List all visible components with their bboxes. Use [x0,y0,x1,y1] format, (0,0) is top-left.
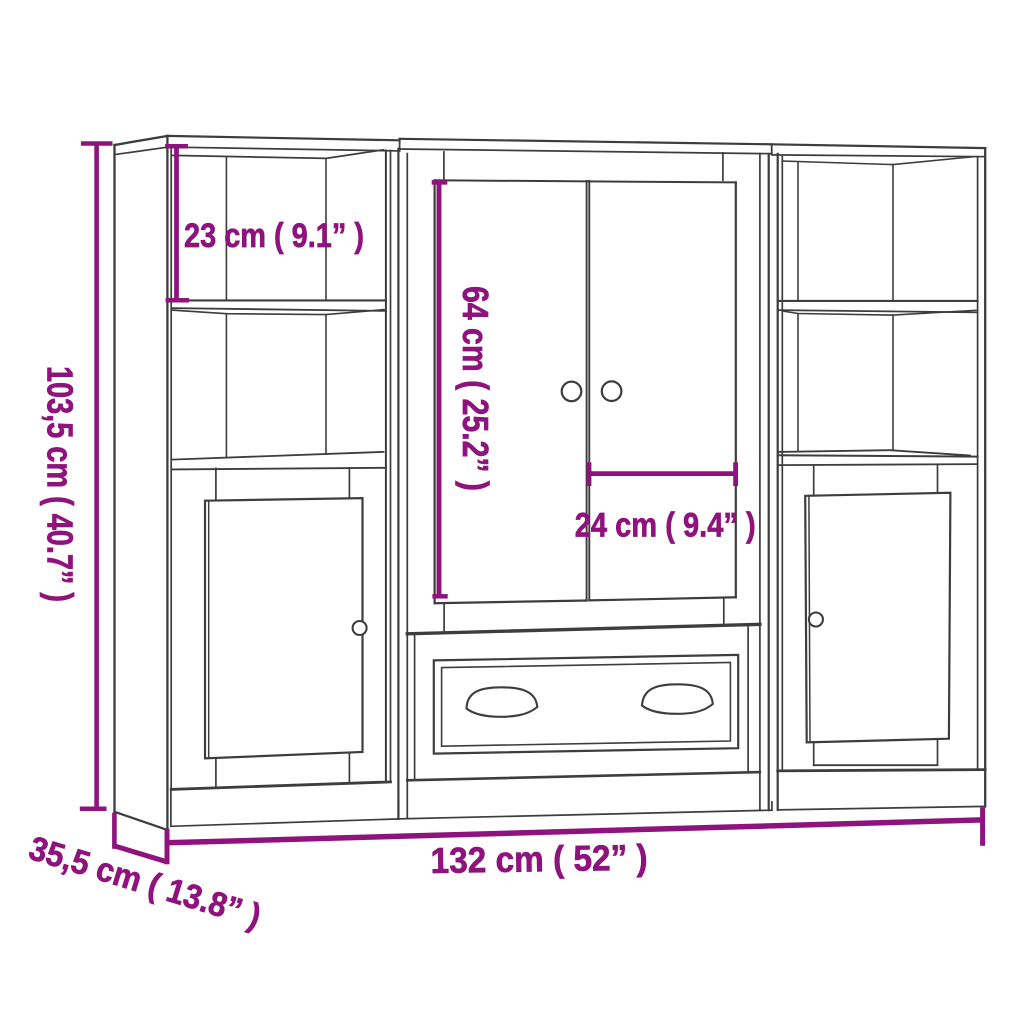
svg-text:35,5 cm ( 13.8” ): 35,5 cm ( 13.8” ) [25,829,266,936]
svg-text:24 cm ( 9.4” ): 24 cm ( 9.4” ) [575,507,756,545]
svg-text:23 cm ( 9.1” ): 23 cm ( 9.1” ) [184,217,364,255]
svg-text:132 cm ( 52” ): 132 cm ( 52” ) [430,837,648,881]
svg-text:103,5 cm ( 40.7” ): 103,5 cm ( 40.7” ) [40,366,81,602]
svg-text:64 cm ( 25.2” ): 64 cm ( 25.2” ) [455,286,496,491]
